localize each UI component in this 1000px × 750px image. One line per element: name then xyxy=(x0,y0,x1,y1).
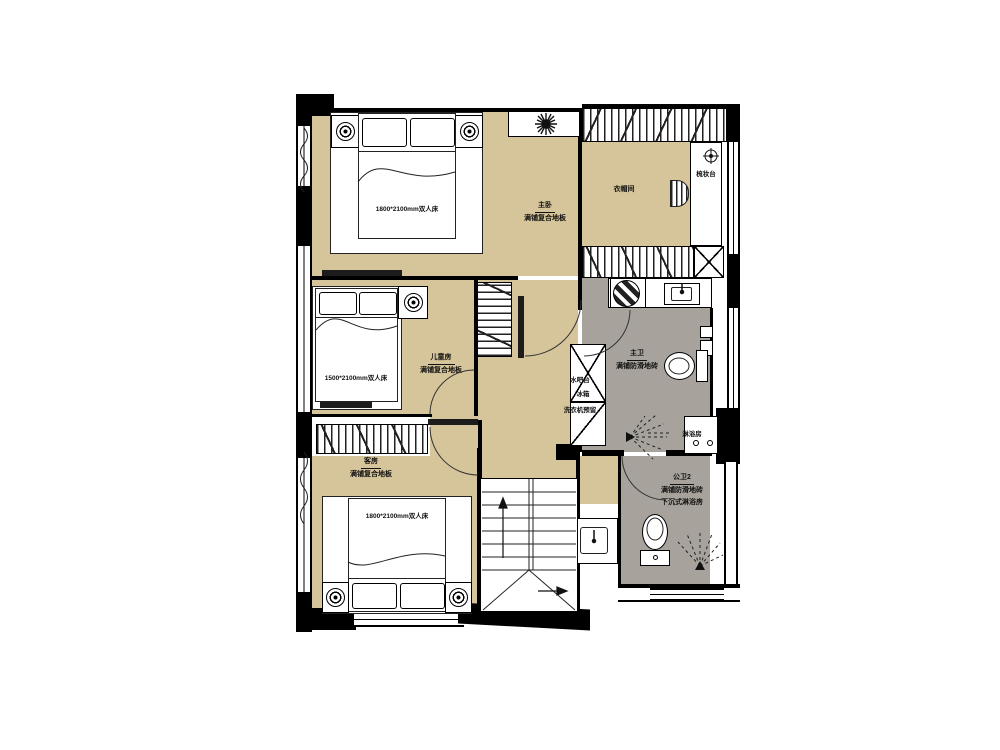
right-wall-segment xyxy=(727,104,740,142)
wall-master-bottom xyxy=(312,276,518,280)
master-room-label: 主卧 满铺复合地板 xyxy=(495,200,595,225)
lamp-icon xyxy=(326,588,345,607)
wall-kids-bottom xyxy=(312,414,432,417)
master-bed-size: 1800*2100mm双人床 xyxy=(352,203,462,213)
left-wall-segment xyxy=(296,412,312,458)
nightstand xyxy=(398,286,428,319)
kids-bed-size: 1500*2100mm双人床 xyxy=(310,372,402,382)
tv-cabinet-master xyxy=(322,270,402,276)
plant-shelf xyxy=(508,111,580,137)
shaft-box xyxy=(694,246,724,278)
nightstand xyxy=(322,582,349,613)
lamp-icon xyxy=(336,122,355,141)
pillow xyxy=(352,583,397,609)
pillow xyxy=(319,292,357,315)
lamp-icon xyxy=(404,293,423,312)
master-bath-label: 主卫 满铺防滑地砖 xyxy=(600,348,674,373)
bath2-sink-basin xyxy=(580,527,608,554)
staircase xyxy=(480,478,578,612)
knob xyxy=(707,440,713,446)
nightstand xyxy=(445,582,472,613)
room-floor: 满铺防滑地砖 xyxy=(616,363,658,370)
room-floor: 满铺复合地板 xyxy=(524,215,566,222)
bath-sink-basin xyxy=(671,287,692,301)
washing-machine-icon xyxy=(613,280,640,307)
room-note: 下沉式淋浴房 xyxy=(661,499,703,506)
corridor-cabinet xyxy=(477,282,512,357)
fridge-label: 冰箱 xyxy=(566,388,600,398)
bottom-window-guest xyxy=(354,612,464,627)
dressing-table xyxy=(690,142,722,246)
room-name: 主卧 xyxy=(535,200,555,213)
pillow xyxy=(362,118,407,147)
lamp-icon xyxy=(449,588,468,607)
corner-top-left xyxy=(296,94,334,116)
floor-plan: 1800*2100mm双人床 主卧 满铺复合地板 梳妆台 衣帽间 主卫 满铺防滑… xyxy=(0,0,1000,750)
bottom-wall-bath2-outer xyxy=(618,600,740,602)
water-bar-label: 水吧台 xyxy=(560,374,600,384)
door-lintel-guest xyxy=(428,419,478,425)
right-wall-window xyxy=(727,142,740,254)
guest-bed-size: 1800*2100mm双人床 xyxy=(342,510,452,520)
nightstand xyxy=(331,115,359,148)
toilet-bath2-bowl xyxy=(642,514,668,550)
room-name: 衣帽间 xyxy=(614,186,635,193)
pillow xyxy=(359,292,397,315)
guest-room-label: 客房 满铺复合地板 xyxy=(332,456,410,481)
pillow xyxy=(400,583,445,609)
wall-bath2-left xyxy=(618,456,621,586)
wall-chunk-corridor xyxy=(556,444,580,460)
room-floor: 满铺防滑地砖 xyxy=(661,487,703,494)
nightstand xyxy=(455,115,483,148)
shower-label: 淋浴房 xyxy=(672,428,712,438)
room-name: 客房 xyxy=(361,456,381,469)
closet-label: 衣帽间 xyxy=(596,184,652,196)
bath2-label: 公卫2 满铺防滑地砖 下沉式淋浴房 xyxy=(634,472,730,509)
wall-fixture xyxy=(700,326,713,338)
left-wall-window xyxy=(296,94,312,630)
room-name: 公卫2 xyxy=(670,472,694,485)
washer-reserved-label: 洗衣机预留 xyxy=(552,404,608,414)
wardrobe-closet-top xyxy=(582,108,727,142)
lamp-icon xyxy=(460,122,479,141)
dressing-table-label: 梳妆台 xyxy=(686,168,726,178)
knob xyxy=(693,440,699,446)
pillow xyxy=(410,118,455,147)
door-leaf-master xyxy=(518,296,524,358)
toilet-button xyxy=(653,555,658,560)
toilet-master-tank xyxy=(696,350,708,382)
floor-passage-bath2 xyxy=(578,456,620,504)
tv-cabinet-kids xyxy=(320,402,372,408)
room-name: 儿童房 xyxy=(428,352,455,365)
right-wall-window xyxy=(727,308,740,408)
left-wall-segment xyxy=(296,186,312,246)
wardrobe-guest xyxy=(316,424,428,454)
right-wall-segment xyxy=(727,254,740,308)
wardrobe-closet-bottom xyxy=(582,246,694,278)
kids-room-label: 儿童房 满铺复合地板 xyxy=(402,352,480,377)
room-floor: 满铺复合地板 xyxy=(350,471,392,478)
room-floor: 满铺复合地板 xyxy=(420,367,462,374)
room-name: 主卫 xyxy=(627,348,647,361)
right-wall-wedge xyxy=(716,408,740,464)
